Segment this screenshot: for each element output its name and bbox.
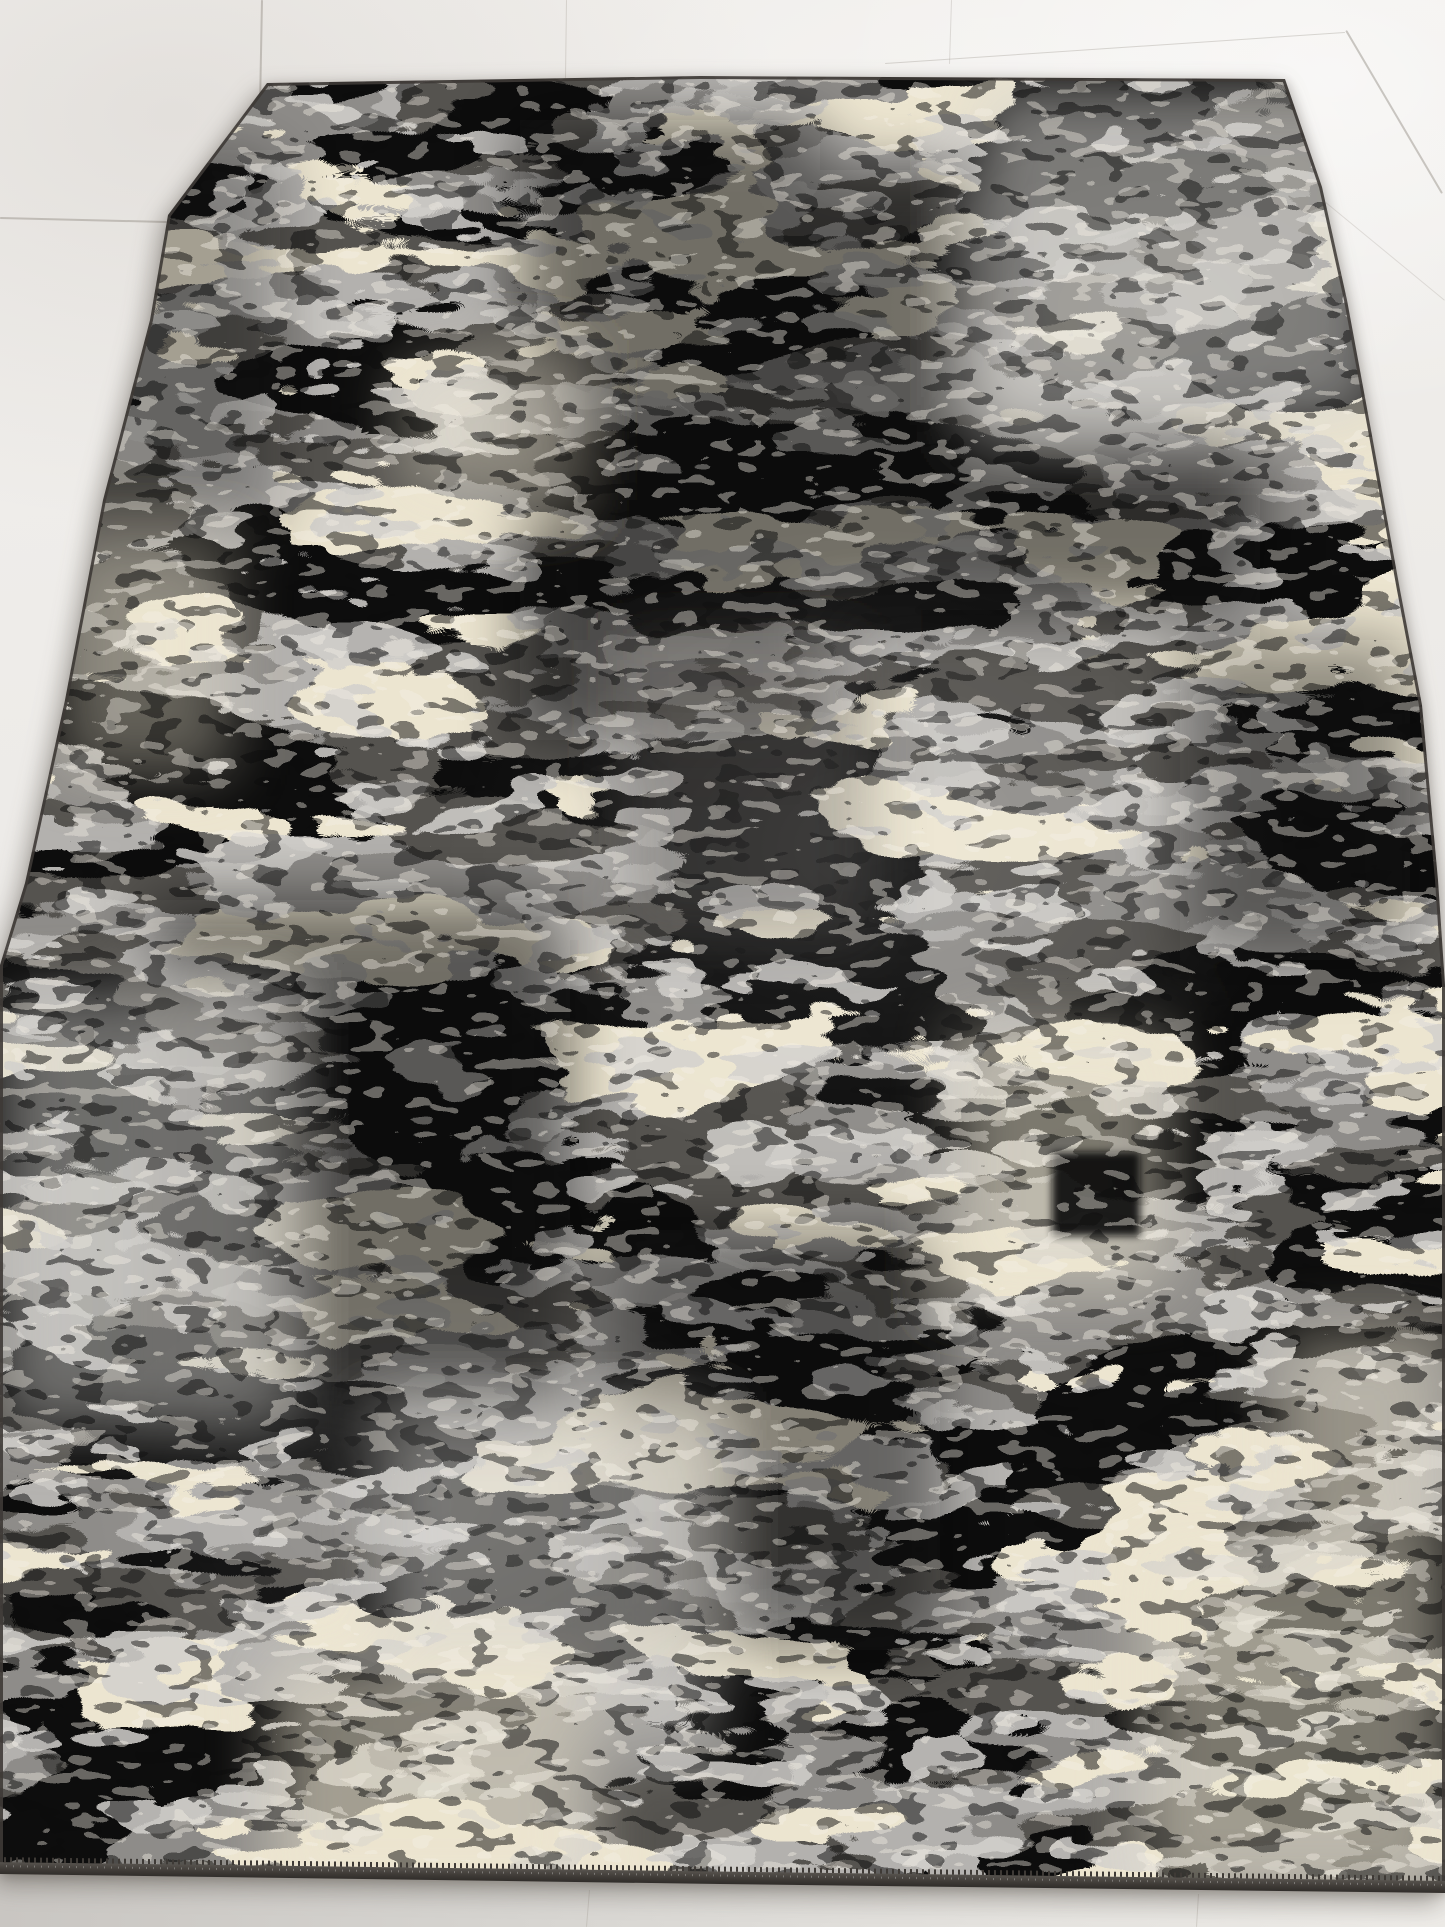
area-rug — [0, 0, 1445, 1927]
photo-scene: Abstract distressed rectangular area rug… — [0, 0, 1445, 1927]
rug-shadow — [0, 0, 1445, 1927]
rug-layer-light-grain — [0, 0, 1445, 1927]
rug-texture-svg — [0, 0, 1445, 1927]
